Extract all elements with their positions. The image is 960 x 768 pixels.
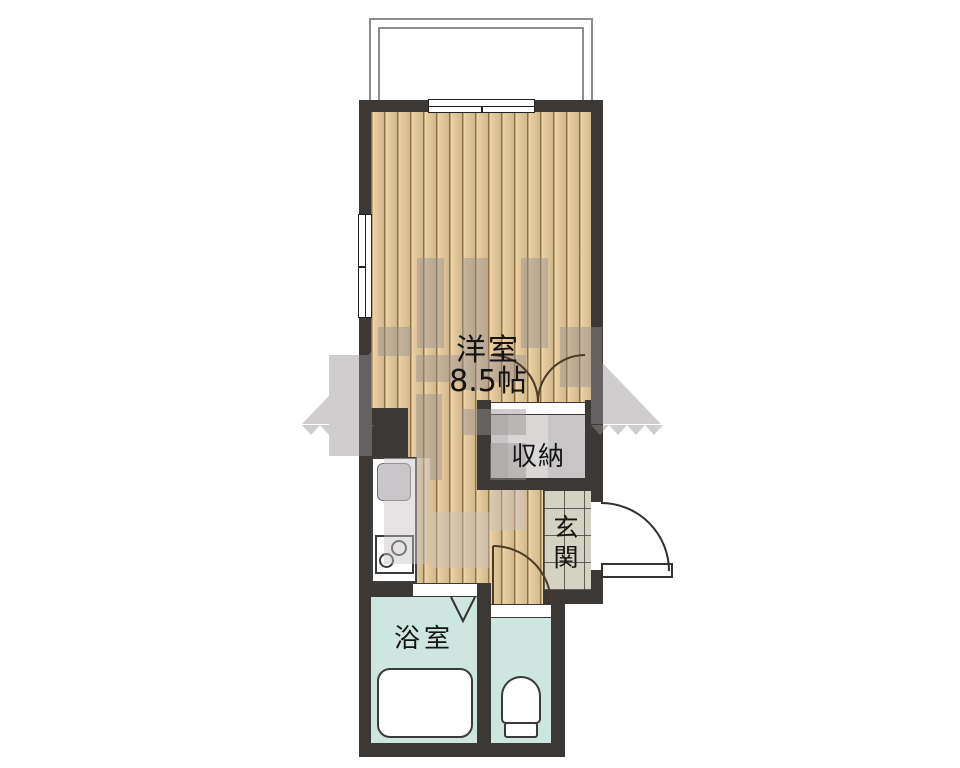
western-room-size-label: 8.5帖 xyxy=(449,364,527,399)
toilet-tank-icon xyxy=(504,722,538,738)
toilet-door-threshold xyxy=(491,604,551,618)
left-sliding-window xyxy=(358,214,372,318)
stove-burner-icon xyxy=(379,553,394,568)
closet-wall-left xyxy=(477,400,491,490)
toilet-bowl-icon xyxy=(501,676,541,724)
wall-bath-toilet-divider xyxy=(477,583,491,757)
entrance-door-opening xyxy=(591,502,603,570)
closet-threshold xyxy=(491,402,585,415)
entrance-label: 玄関 xyxy=(552,503,582,585)
wall-below-entrance xyxy=(543,590,603,604)
entrance-door-leaf xyxy=(601,563,673,578)
bathroom-label: 浴室 xyxy=(371,618,477,655)
bathtub xyxy=(377,668,473,738)
wall-toilet-right xyxy=(551,604,565,757)
bathroom-door-threshold xyxy=(413,583,477,597)
top-sliding-window xyxy=(428,99,535,113)
window-center-tick xyxy=(481,106,483,113)
western-room-label-group: 洋室 8.5帖 xyxy=(425,335,551,397)
kitchen-sink xyxy=(377,463,411,501)
floor-plan: 洋室 8.5帖 収納 玄関 浴室 xyxy=(0,0,960,768)
stove-burner-icon xyxy=(391,540,407,556)
window-center-tick xyxy=(359,266,366,268)
entrance-door-arc xyxy=(601,503,669,571)
balcony-inner-line xyxy=(378,27,584,101)
closet-label: 収納 xyxy=(491,436,585,473)
wall-left-stub xyxy=(359,408,408,457)
wall-kitchen-bottom xyxy=(359,583,413,597)
western-room-label: 洋室 xyxy=(456,333,520,368)
closet-wall-right xyxy=(585,400,603,490)
closet-wall-bottom xyxy=(477,478,603,490)
wall-bottom xyxy=(359,743,565,757)
